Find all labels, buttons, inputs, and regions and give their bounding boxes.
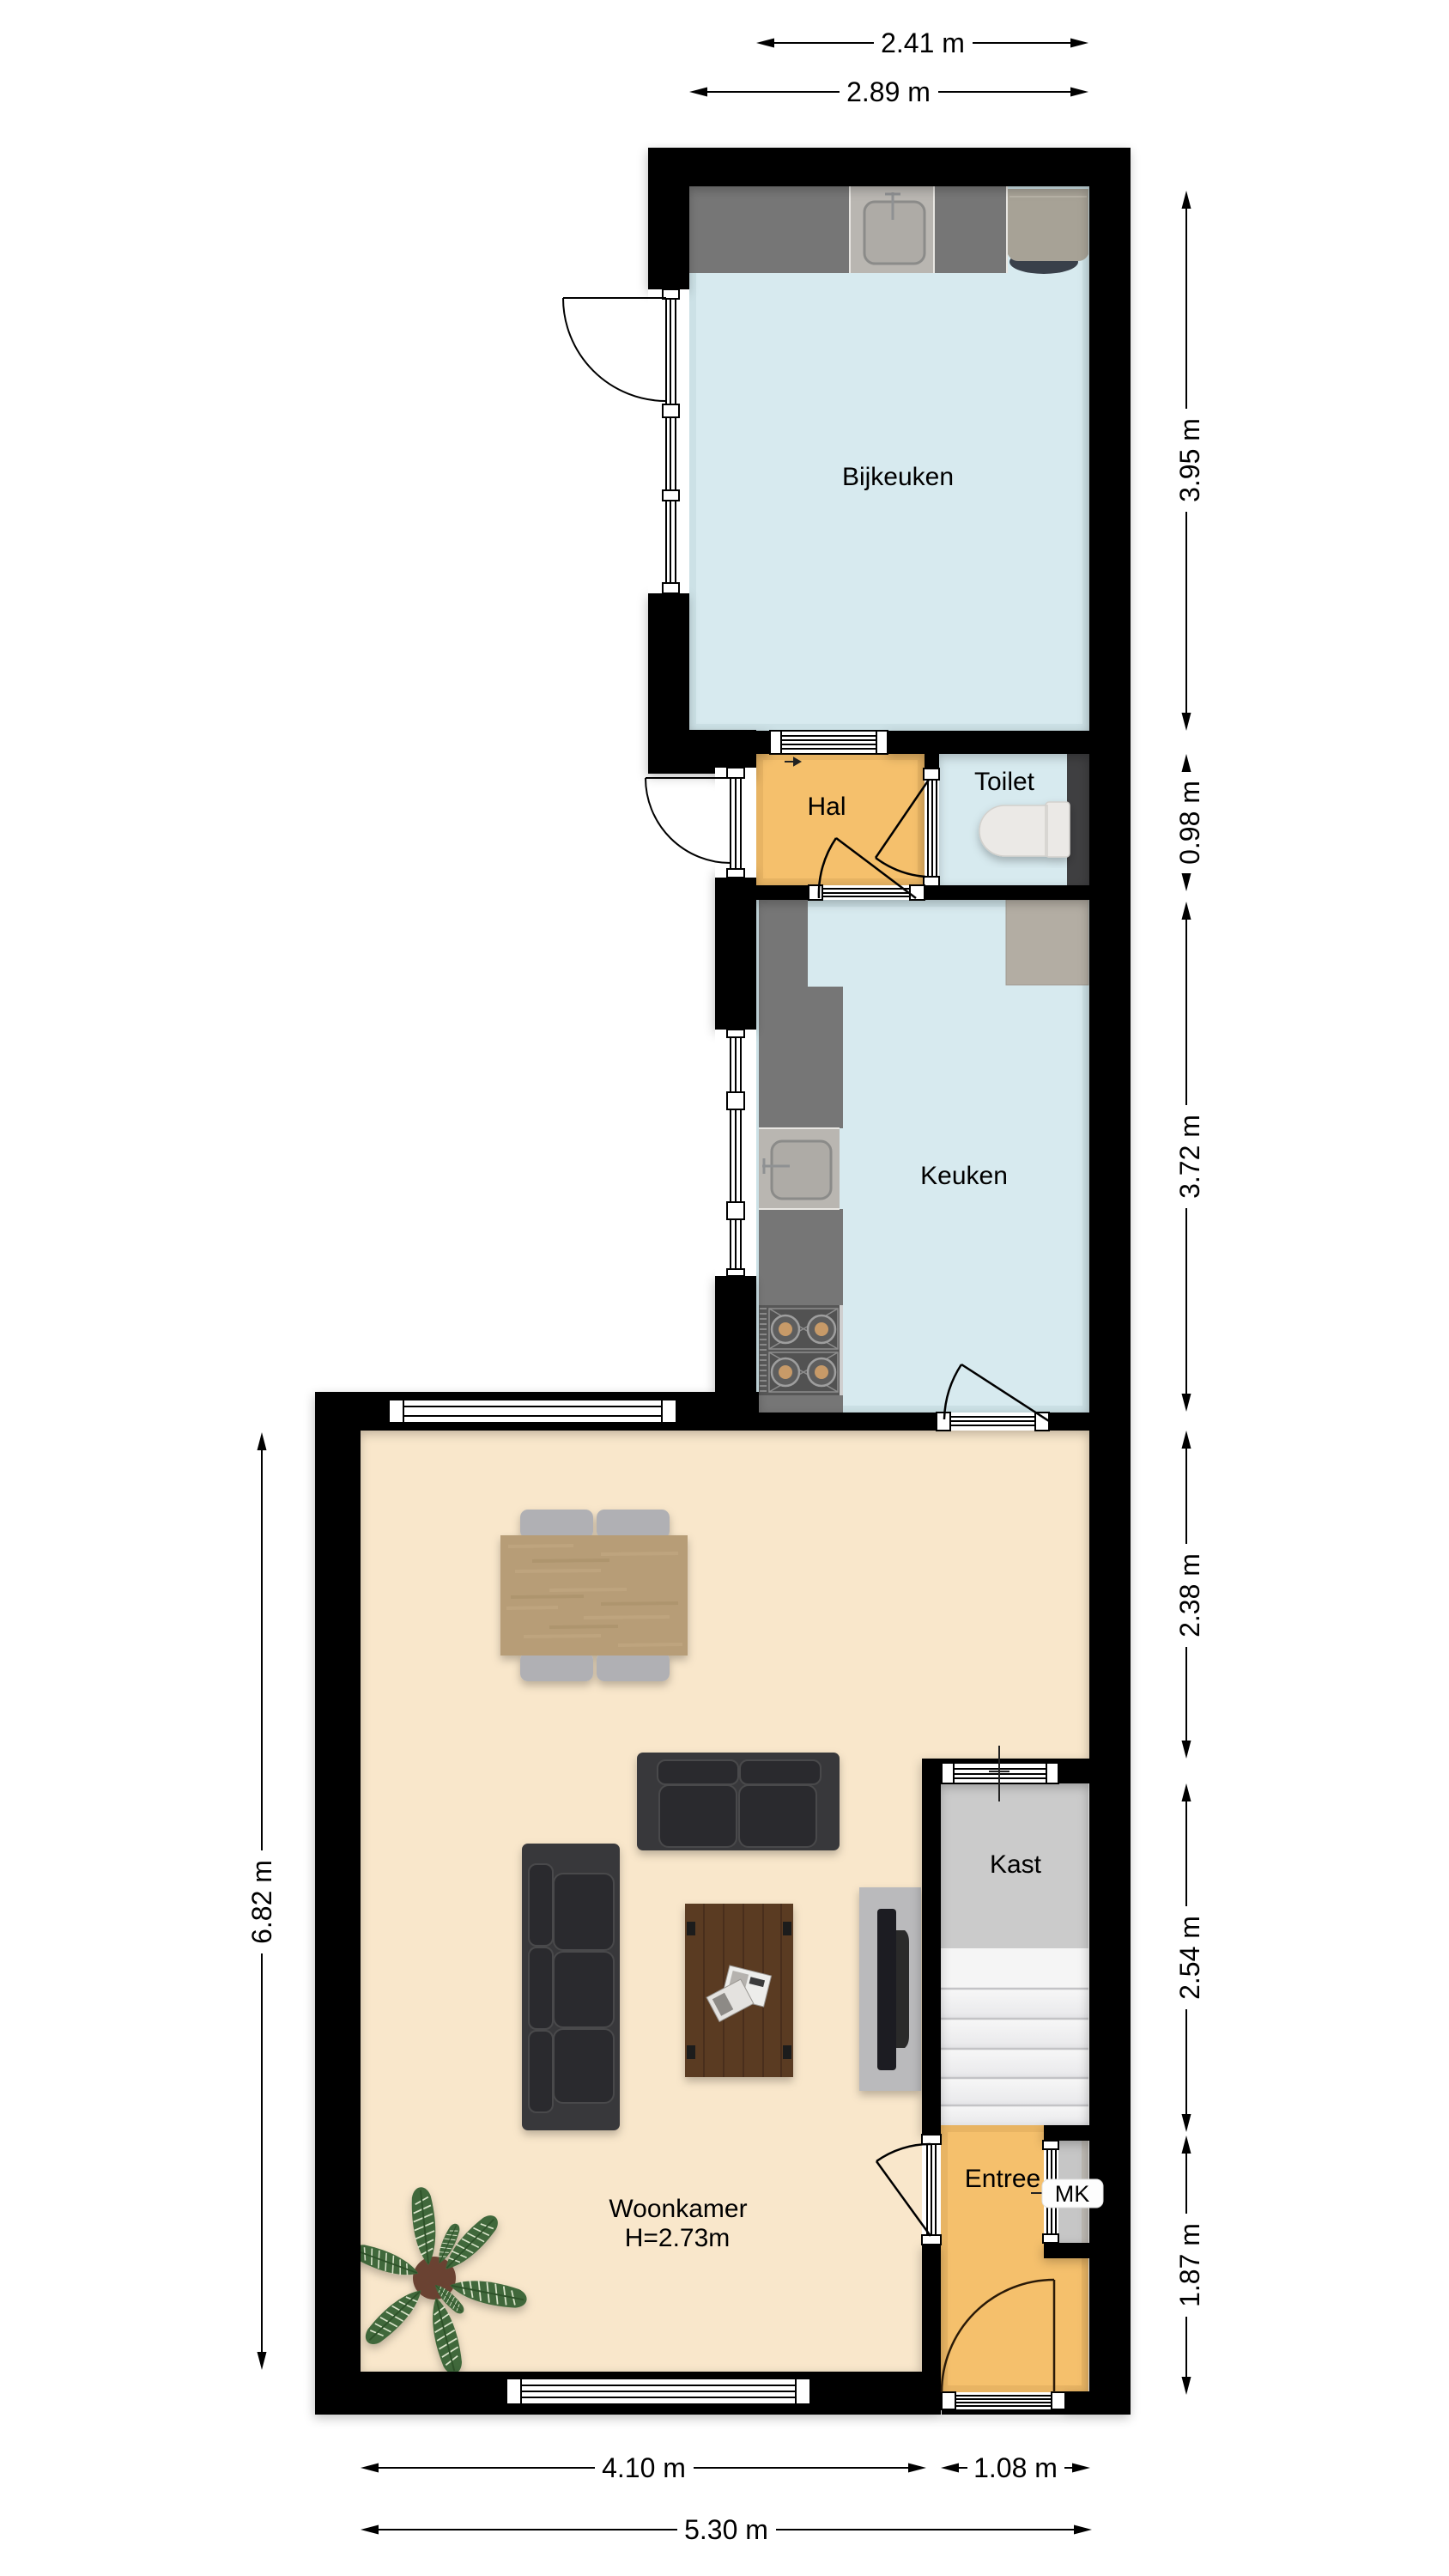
svg-text:Hal: Hal <box>807 793 846 821</box>
svg-text:6.82 m: 6.82 m <box>246 1860 277 1944</box>
svg-text:2.89 m: 2.89 m <box>846 76 931 107</box>
svg-text:2.54 m: 2.54 m <box>1174 1916 1205 2000</box>
svg-text:3.72 m: 3.72 m <box>1174 1115 1205 1199</box>
svg-text:Toilet: Toilet <box>974 768 1035 796</box>
svg-text:2.38 m: 2.38 m <box>1174 1553 1205 1637</box>
svg-text:Woonkamer: Woonkamer <box>609 2195 747 2223</box>
svg-text:MK: MK <box>1055 2181 1090 2207</box>
svg-text:4.10 m: 4.10 m <box>602 2452 686 2483</box>
svg-text:Kast: Kast <box>990 1850 1042 1879</box>
svg-text:Entree: Entree <box>965 2165 1040 2193</box>
svg-text:Bijkeuken: Bijkeuken <box>842 463 954 491</box>
svg-text:3.95 m: 3.95 m <box>1174 418 1205 502</box>
svg-text:5.30 m: 5.30 m <box>684 2514 768 2545</box>
svg-text:1.87 m: 1.87 m <box>1174 2223 1205 2307</box>
svg-text:1.08 m: 1.08 m <box>973 2452 1058 2483</box>
svg-text:2.41 m: 2.41 m <box>881 27 965 58</box>
svg-text:Keuken: Keuken <box>920 1162 1008 1190</box>
svg-text:H=2.73m: H=2.73m <box>625 2224 731 2252</box>
svg-text:0.98 m: 0.98 m <box>1174 781 1205 865</box>
